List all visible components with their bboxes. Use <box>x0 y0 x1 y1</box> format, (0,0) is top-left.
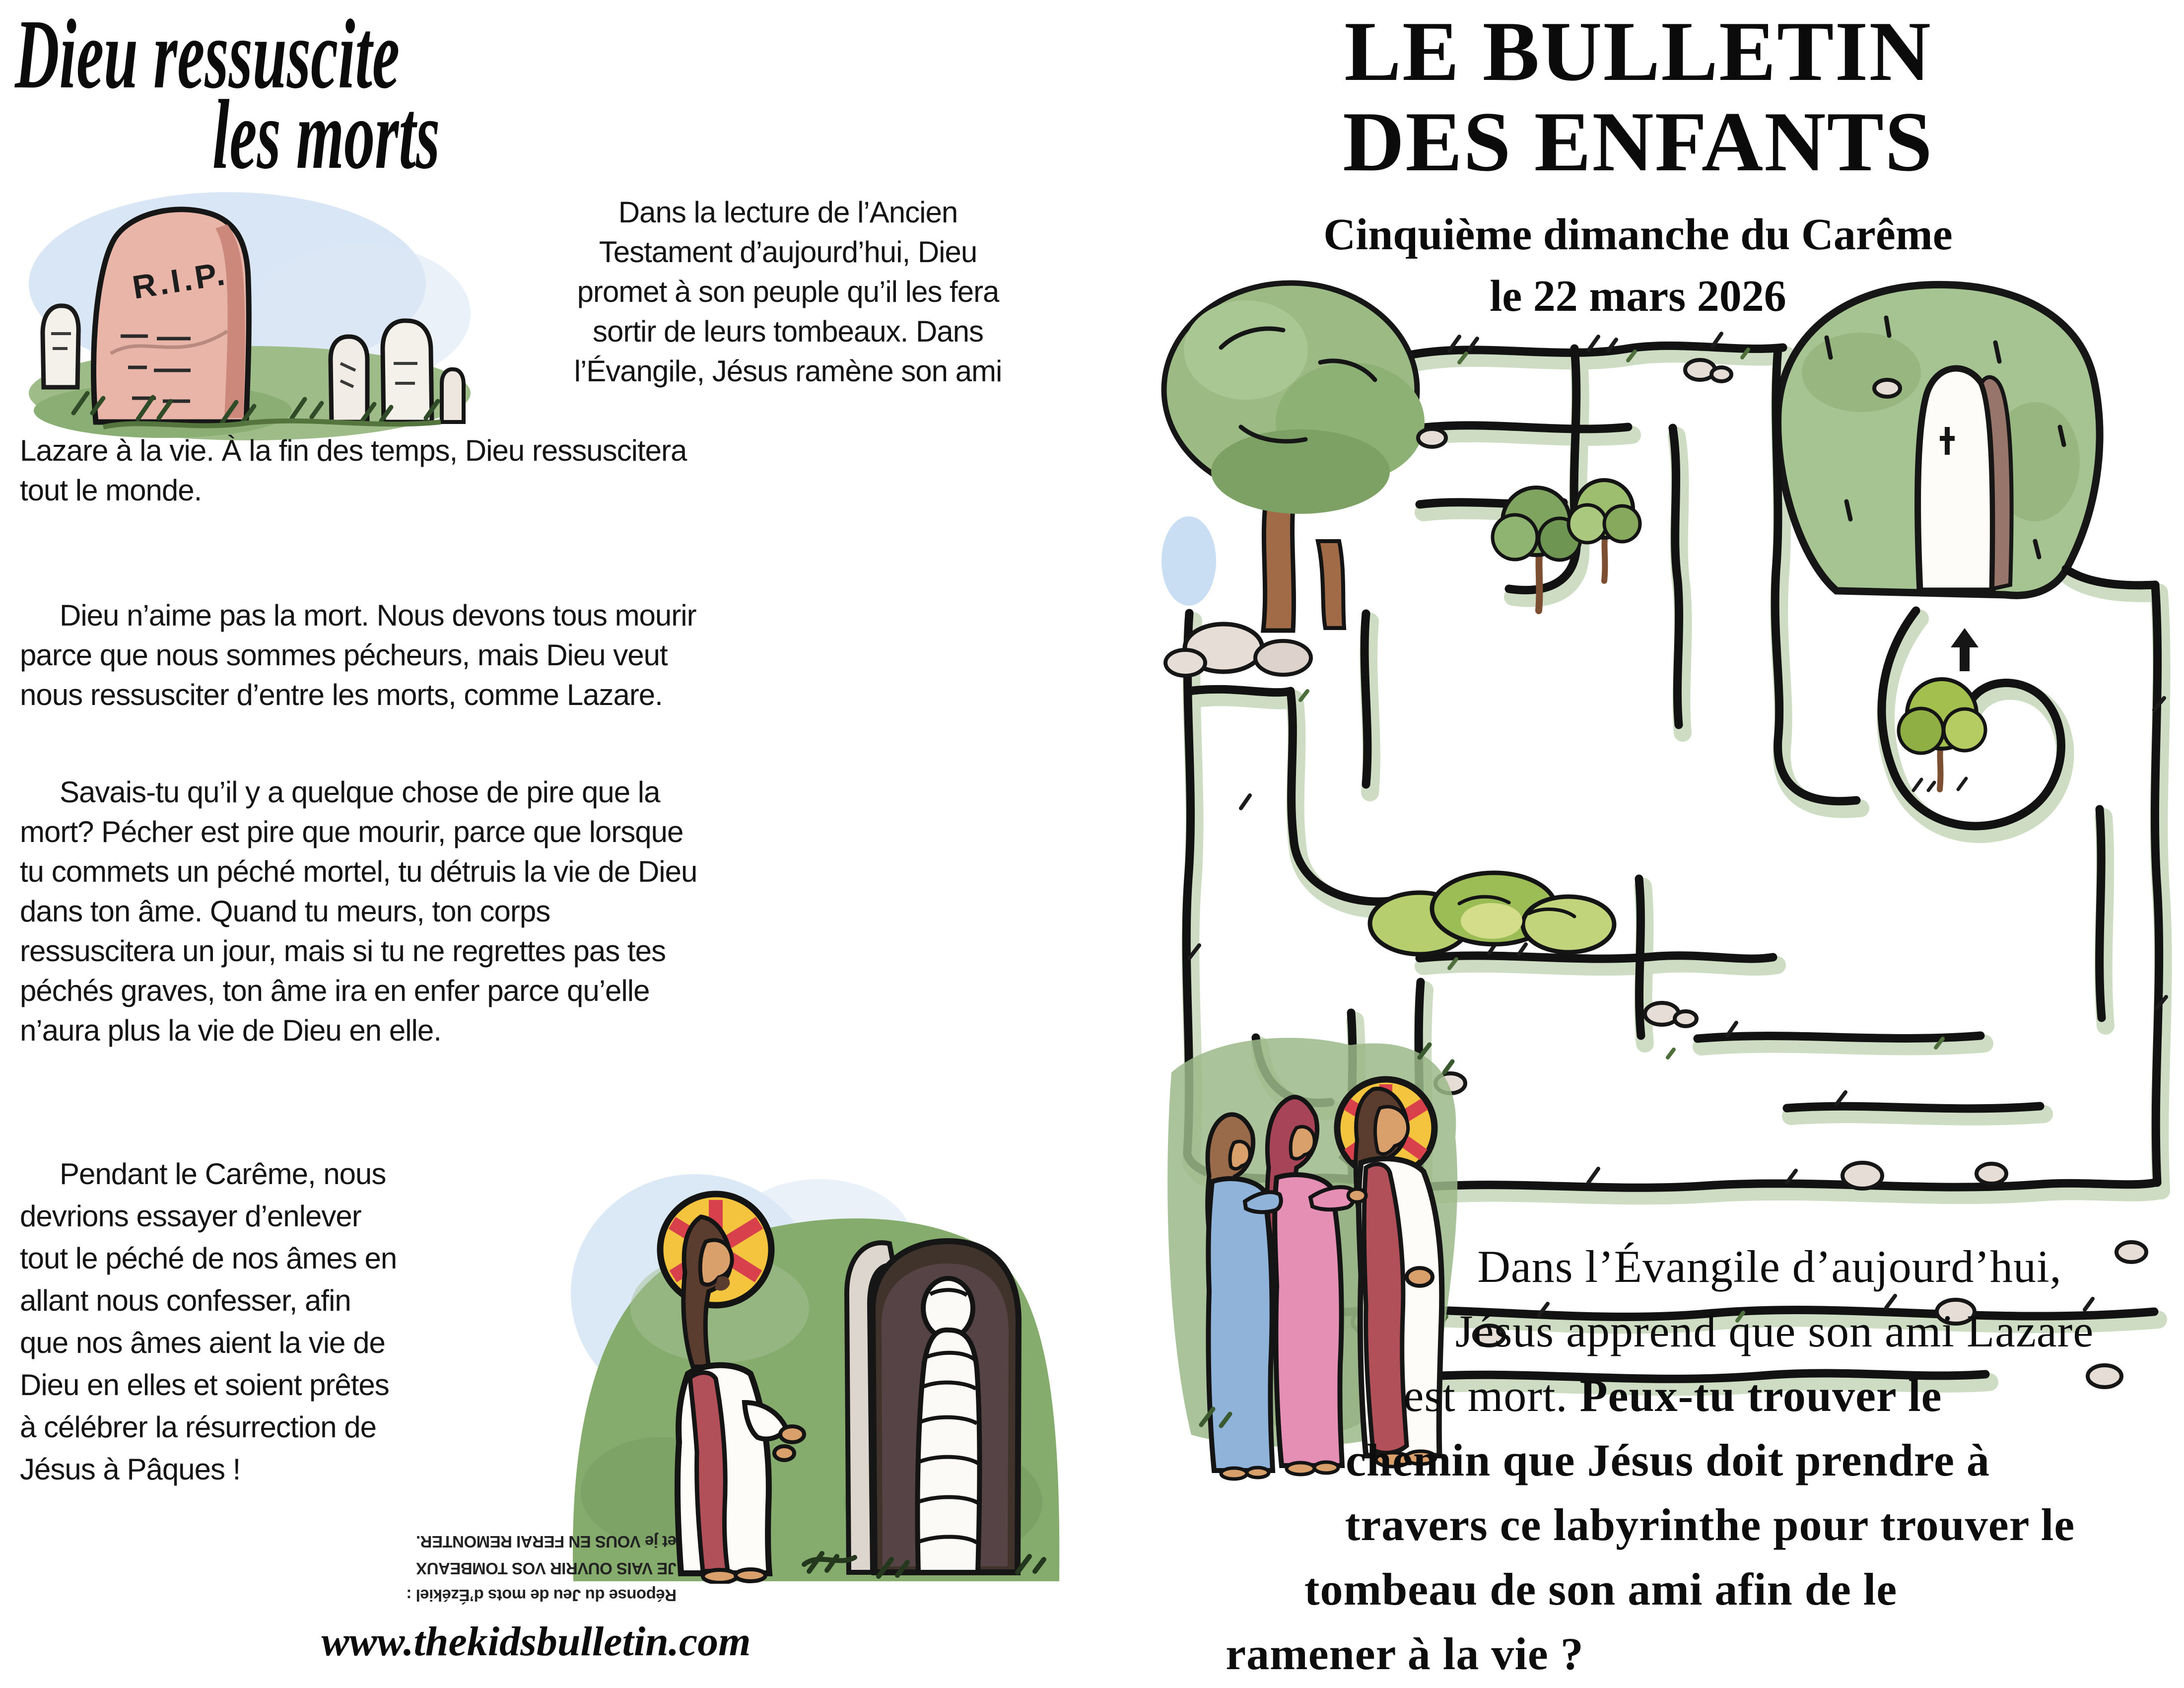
caption-line-5: travers ce labyrinthe pour trouver le <box>1345 1502 2075 1547</box>
trunk <box>1263 501 1294 631</box>
foot <box>736 1569 765 1581</box>
text-line: tout le monde. <box>20 471 764 510</box>
foot <box>1221 1468 1247 1479</box>
text-line: Dans la lecture de l’Ancien <box>521 193 1055 232</box>
tomb-mound <box>1778 284 2100 671</box>
foot <box>703 1570 737 1583</box>
hand <box>780 1426 804 1442</box>
caption-line-4: chemin que Jésus doit prendre à <box>1346 1437 1990 1483</box>
text-line: tout le péché de nos âmes en <box>20 1237 581 1279</box>
small-tombstone-left <box>43 306 78 387</box>
text-line: mort? Pécher est pire que mourir, parce … <box>20 812 774 852</box>
paragraph-3: Savais-tu qu’il y a quelque chose de pir… <box>20 773 774 1051</box>
text-line: Savais-tu qu’il y a quelque chose de pir… <box>20 773 774 812</box>
foot <box>1287 1463 1314 1475</box>
website-link[interactable]: www.thekidsbulletin.com <box>288 1618 784 1666</box>
paragraph-1-wrapped: Dans la lecture de l’Ancien Testament d’… <box>521 193 1055 391</box>
paragraph-1-full: Lazare à la vie. À la fin des temps, Die… <box>20 431 764 510</box>
text-line: n’aura plus la vie de Dieu en elle. <box>20 1011 774 1051</box>
text-line: parce que nous sommes pécheurs, mais Die… <box>20 635 764 675</box>
left-page-title-line2: les morts <box>212 85 440 185</box>
face <box>1230 1141 1250 1169</box>
bulletin-page: { "left_page": { "title": { "line1": "Di… <box>0 0 2184 1688</box>
text-line: sortir de leurs tombeaux. Dans <box>521 312 1055 352</box>
text-line: l’Évangile, Jésus ramène son ami <box>521 352 1055 391</box>
caption-line-1: Dans l’Évangile d’aujourd’hui, <box>1477 1244 2061 1289</box>
rock <box>1255 641 1311 675</box>
text-line: Pendant le Carême, nous <box>20 1153 581 1195</box>
caption-line-2: Jésus apprend que son ami Lazare <box>1455 1308 2094 1354</box>
rock <box>1165 650 1205 676</box>
right-page-title-line2: DES ENFANTS <box>1092 99 2184 185</box>
text-line: à célébrer la résurrection de <box>20 1406 581 1448</box>
text-line: promet à son peuple qu’il les fera <box>521 272 1055 312</box>
jesus-raising-lazarus-illustration <box>571 1144 1062 1584</box>
text-line: Dieu n’aime pas la mort. Nous devons tou… <box>20 596 764 635</box>
hand <box>1407 1268 1433 1286</box>
caption-line-6: tombeau de son ami afin de le <box>1304 1566 1897 1612</box>
tomb-door <box>1918 368 1993 591</box>
rip-tombstones-illustration: R.I.P. <box>14 185 513 440</box>
text-line: tu commets un péché mortel, tu détruis l… <box>20 852 774 892</box>
puzzle-answer-upside-down: Réponse du Jeu de mots d’Ézékiel : JE VA… <box>391 1528 677 1609</box>
text-line: nous ressusciter d’entre les morts, comm… <box>20 675 764 715</box>
paragraph-2: Dieu n’aime pas la mort. Nous devons tou… <box>20 596 764 715</box>
right-page-subtitle: Cinquième dimanche du Carême <box>1092 212 2184 257</box>
lazarus-figure <box>918 1278 980 1572</box>
center-bushes <box>1370 873 1614 954</box>
caption-line-3: est mort. Peux-tu trouver le <box>1404 1373 1942 1418</box>
answer-line: et je VOUS EN FERAI REMONTER. <box>391 1528 677 1555</box>
caption-bold: Peux-tu trouver le <box>1579 1370 1942 1421</box>
text-line: Lazare à la vie. À la fin des temps, Die… <box>20 431 764 471</box>
hand <box>1348 1189 1366 1202</box>
text-line: Dieu en elles et soient prêtes <box>20 1364 581 1406</box>
maze-tree-right <box>1899 679 1985 790</box>
big-rip-tombstone: R.I.P. <box>94 210 249 422</box>
blue-dress <box>1208 1179 1273 1471</box>
caption-line-7: ramener à la vie ? <box>1226 1631 1583 1677</box>
answer-line: Réponse du Jeu de mots d’Ézékiel : <box>391 1582 677 1609</box>
text-line: que nos âmes aient la vie de <box>20 1322 581 1364</box>
text-line: allant nous confesser, afin <box>20 1279 581 1322</box>
caption-regular: est mort. <box>1404 1370 1580 1421</box>
text-line: péchés graves, ton âme ira en enfer parc… <box>20 971 774 1011</box>
goal-arrow-up <box>1951 628 1979 671</box>
pink-dress <box>1275 1175 1342 1466</box>
hand <box>774 1446 794 1460</box>
answer-line: JE VAIS OUVRIR VOS TOMBEAUX <box>391 1555 677 1582</box>
sky-patch <box>1161 516 1216 606</box>
foot <box>1247 1468 1269 1477</box>
paragraph-4: Pendant le Carême, nous devrions essayer… <box>20 1153 581 1490</box>
text-line: dans ton âme. Quand tu meurs, ton corps <box>20 892 774 931</box>
foot <box>1314 1462 1338 1473</box>
text-line: Jésus à Pâques ! <box>20 1448 581 1490</box>
right-page-title-line1: LE BULLETIN <box>1092 9 2184 94</box>
text-line: Testament d’aujourd’hui, Dieu <box>521 232 1055 272</box>
text-line: devrions essayer d’enlever <box>20 1195 581 1237</box>
text-line: ressuscitera un jour, mais si tu ne regr… <box>20 931 774 971</box>
